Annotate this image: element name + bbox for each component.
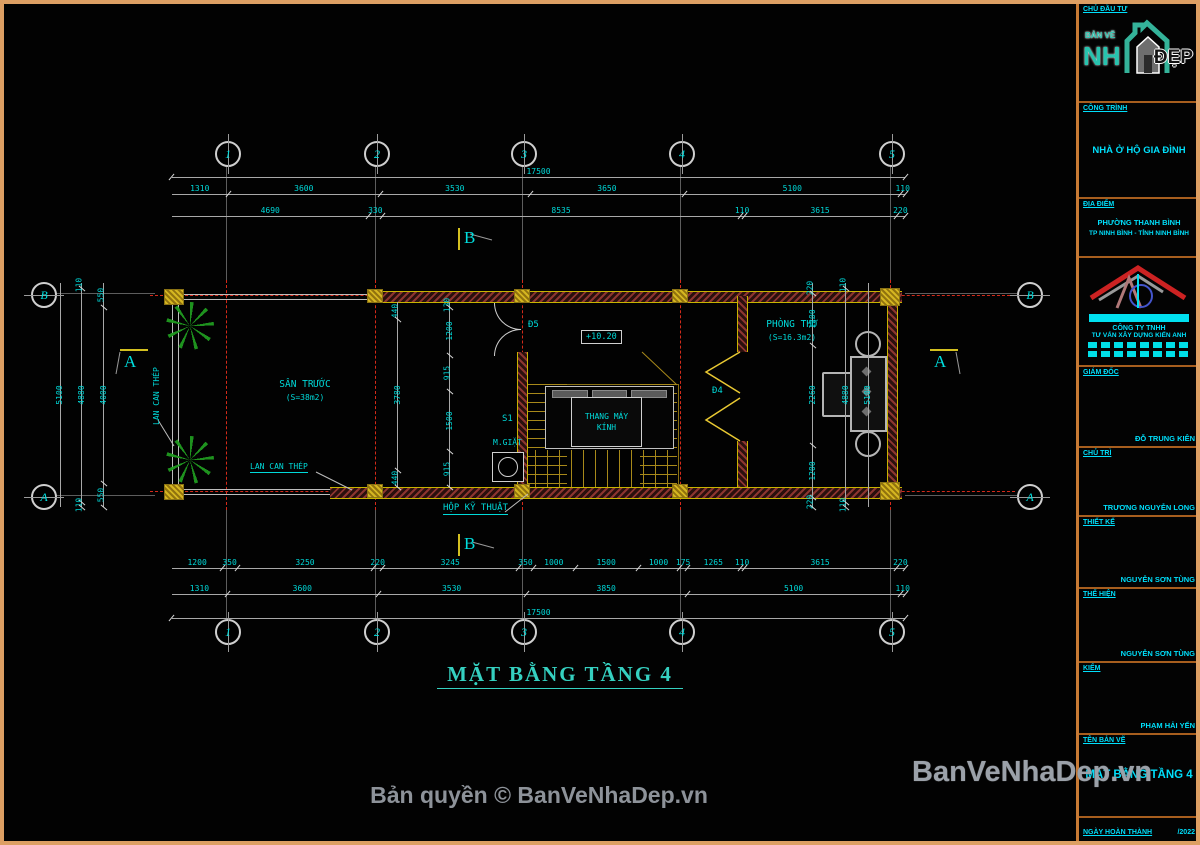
grid-bubble: 2 — [364, 619, 390, 645]
section-b-bottom-tick — [458, 534, 460, 556]
grid-bubble: 5 — [879, 141, 905, 167]
grid-bubble-A-right: A — [1017, 484, 1043, 510]
door-label-d4: Đ4 — [712, 386, 723, 396]
company-address-blocks — [1088, 351, 1190, 357]
grid-bubble: 2 — [364, 141, 390, 167]
sheet-name-caption: TÊN BẢN VẼ — [1083, 737, 1195, 744]
owner-caption: CHỦ ĐẦU TƯ — [1083, 6, 1195, 13]
section-a-left-arrow — [116, 352, 120, 374]
titleblock-date: NGÀY HOÀN THÀNH /2022 — [1079, 818, 1199, 845]
section-a-left-tick — [120, 349, 148, 351]
grid-bubble-A-left: A — [31, 484, 57, 510]
drafter-name: NGUYỄN SƠN TÙNG — [1121, 649, 1195, 658]
stair-diagonal — [642, 352, 677, 385]
grid-bubble: 3 — [511, 619, 537, 645]
location-line2: TP NINH BÌNH - TỈNH NINH BÌNH — [1083, 230, 1195, 237]
grid-bubble: 4 — [669, 619, 695, 645]
company-logo-icon — [1083, 260, 1193, 310]
label-m-giat: M.GIẶT — [493, 438, 522, 447]
drafter-caption: THỂ HIỆN — [1083, 591, 1195, 598]
designer-name: NGUYỄN SƠN TÙNG — [1121, 575, 1195, 584]
leader-hop-ky-thuat — [505, 494, 528, 512]
annotation-lines — [0, 0, 1200, 845]
room-label-phong-tho: PHÒNG THỜ(S=16.3m2) — [742, 318, 842, 344]
date-caption: NGÀY HOÀN THÀNH — [1083, 829, 1152, 836]
grid-bubble-B-left: B — [31, 282, 57, 308]
section-a-right-tick — [930, 349, 958, 351]
location-caption: ĐỊA ĐIỂM — [1083, 201, 1195, 208]
cad-drawing-sheet: 12345 12345 B A B A 17500 13103600353036… — [0, 0, 1200, 845]
lead-name: TRƯƠNG NGUYỄN LONG — [1103, 503, 1195, 512]
label-s1: S1 — [502, 414, 513, 424]
label-hop-ky-thuat: HỘP KỸ THUẬT — [443, 503, 508, 515]
company-name-1: CÔNG TY TNHH — [1083, 325, 1195, 332]
company-logo — [1083, 260, 1195, 312]
location-line1: PHƯỜNG THANH BÌNH — [1083, 218, 1195, 227]
drawing-title: MẶT BẰNG TẦNG 4 — [330, 662, 790, 687]
titleblock-checker: KIỂM PHẠM HẢI YẾN — [1079, 663, 1199, 735]
titleblock-drafter: THỂ HIỆN NGUYỄN SƠN TÙNG — [1079, 589, 1199, 663]
leader-lan-can-thep-h — [316, 472, 352, 490]
logo-dep-text: ĐẸP — [1154, 47, 1193, 69]
room-label-san-truoc: SÂN TRƯỚC(S=38m2) — [250, 378, 360, 404]
label-lan-can-thep-vertical: LAN CAN THÉP — [152, 367, 161, 425]
section-b-top: B — [464, 228, 475, 248]
logo-nh-text: NH — [1083, 41, 1121, 72]
project-caption: CÔNG TRÌNH — [1083, 105, 1195, 112]
project-name: NHÀ Ở HỘ GIA ĐÌNH — [1079, 145, 1199, 156]
logo-banve-text: BẢN VẼ — [1085, 31, 1115, 40]
lead-caption: CHỦ TRÌ — [1083, 450, 1195, 457]
section-a-left: A — [124, 352, 136, 372]
door-d4-leaf-lower — [706, 398, 740, 441]
director-name: ĐỖ TRUNG KIÊN — [1135, 434, 1195, 443]
grid-bubble: 5 — [879, 619, 905, 645]
titleblock-director: GIÁM ĐỐC ĐỖ TRUNG KIÊN — [1079, 367, 1199, 448]
section-b-top-tick — [458, 228, 460, 250]
titleblock-lead: CHỦ TRÌ TRƯƠNG NGUYỄN LONG — [1079, 448, 1199, 517]
director-caption: GIÁM ĐỐC — [1083, 369, 1195, 376]
company-name-2: TƯ VẤN XÂY DỰNG KIẾN ANH — [1083, 332, 1195, 339]
company-bar — [1089, 314, 1189, 322]
grid-bubble: 1 — [215, 619, 241, 645]
titleblock-designer: THIẾT KẾ NGUYỄN SƠN TÙNG — [1079, 517, 1199, 589]
watermark-text: BanVeNhaDep.vn — [912, 756, 1152, 789]
grid-bubble: 4 — [669, 141, 695, 167]
date-value: /2022 — [1177, 829, 1195, 836]
titleblock-owner: CHỦ ĐẦU TƯ BẢN VẼ NH ĐẸP — [1079, 4, 1199, 103]
grid-bubble-B-right: B — [1017, 282, 1043, 308]
section-b-bottom: B — [464, 534, 475, 554]
checker-caption: KIỂM — [1083, 665, 1195, 672]
label-lan-can-thep-horizontal: LAN CAN THÉP — [250, 462, 308, 473]
door-label-d5: Đ5 — [528, 320, 539, 330]
company-address-blocks — [1088, 342, 1190, 348]
grid-bubble: 3 — [511, 141, 537, 167]
checker-name: PHẠM HẢI YẾN — [1141, 721, 1195, 730]
section-a-right-arrow — [956, 352, 960, 374]
title-block: CHỦ ĐẦU TƯ BẢN VẼ NH ĐẸP CÔNG TRÌNH NHÀ … — [1076, 4, 1199, 841]
elevation-marker: +10.20 — [581, 330, 622, 344]
designer-caption: THIẾT KẾ — [1083, 519, 1195, 526]
titleblock-project: CÔNG TRÌNH NHÀ Ở HỘ GIA ĐÌNH — [1079, 103, 1199, 199]
titleblock-location: ĐỊA ĐIỂM PHƯỜNG THANH BÌNH TP NINH BÌNH … — [1079, 199, 1199, 258]
grid-bubble: 1 — [215, 141, 241, 167]
section-a-right: A — [934, 352, 946, 372]
banvenhadep-logo: BẢN VẼ NH ĐẸP — [1083, 17, 1195, 87]
titleblock-company: CÔNG TY TNHH TƯ VẤN XÂY DỰNG KIẾN ANH — [1079, 258, 1199, 367]
